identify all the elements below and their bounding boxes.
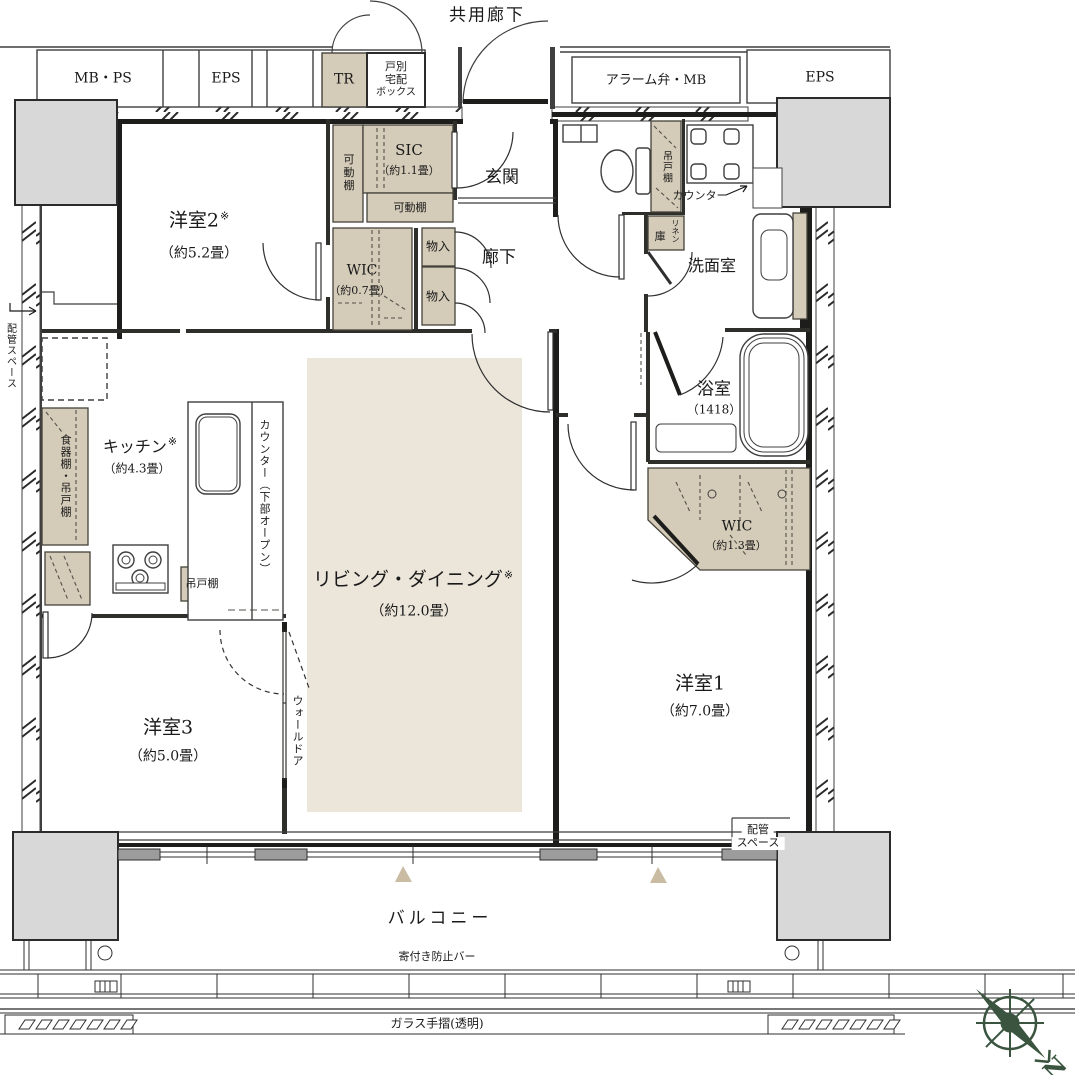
label-eps-left: EPS [211, 71, 240, 86]
railing [0, 970, 1075, 998]
label-wash-counter: カウンター [673, 190, 728, 202]
toilet-shelf [563, 125, 597, 142]
label-mono-ire-1: 物入 [426, 240, 450, 253]
label-eps-right: EPS [805, 70, 834, 85]
floor-plan-drawing: N [0, 0, 1075, 1075]
toilet-tank [636, 148, 650, 194]
drain-right [785, 946, 799, 960]
label-balcony: バルコニー [388, 910, 493, 929]
label-wic13: WIC [722, 519, 753, 534]
cabinet-kitchen [45, 552, 90, 605]
label-washroom: 洗面室 [688, 257, 736, 275]
label-glass-handrail: ガラス手摺(透明) [385, 1017, 488, 1030]
slide-marker-right [650, 867, 667, 883]
label-mb-ps: MB・PS [74, 71, 132, 86]
wash-counter [753, 168, 782, 208]
label-cupboard: 食器棚・吊戸棚 [59, 434, 71, 518]
label-alarm-mb: アラーム弁・MB [606, 74, 706, 88]
label-anti-lean-bar: 寄付き防止バー [399, 951, 476, 963]
label-bedroom3-size: （約5.0畳） [129, 749, 207, 764]
label-hanging-cupboard-kitchen: 吊戸棚 [186, 578, 219, 590]
label-wall-door: ウォールドア [291, 695, 303, 767]
label-counter-kitchen: カウンター（下部オープン） [258, 419, 270, 575]
label-mono-ire-2: 物入 [426, 290, 450, 303]
compass-n-label: N [1037, 1050, 1073, 1075]
label-linen-cabinet: 庫 リネン [653, 219, 679, 247]
label-hanging-cupboard-toilet: 吊戸棚 [661, 151, 672, 184]
label-corridor: 廊下 [482, 249, 516, 268]
compass: N [952, 965, 1075, 1075]
label-movable-shelf-v: 可動棚 [342, 154, 354, 193]
label-sic: SIC [395, 142, 423, 159]
label-pipe-space-right: 配管 スペース [732, 824, 785, 850]
label-bath-size: （1418） [687, 403, 742, 416]
toilet-bowl [601, 150, 633, 192]
balcony-zone [0, 846, 1075, 1034]
label-bedroom2: 洋室2※ [169, 211, 229, 232]
window-glass [160, 846, 722, 864]
label-living-dining-size: （約12.0畳） [370, 604, 457, 619]
window-sashes [118, 849, 777, 860]
entrance-door-leaf [463, 99, 548, 104]
label-wic07-size: （約0.7畳） [329, 285, 391, 297]
label-kitchen-size: （約4.3畳） [103, 462, 170, 475]
label-delivery-box: 戸別 宅配 ボックス [376, 61, 416, 99]
label-wic13-size: （約1.3畳） [705, 540, 767, 552]
label-movable-shelf-h: 可動棚 [394, 202, 427, 214]
vanity-back-shelf [793, 213, 807, 319]
label-wic07: WIC [347, 263, 378, 278]
label-kitchen: キッチン※ [103, 436, 177, 456]
label-common-corridor: 共用廊下 [449, 7, 525, 26]
slide-marker-left [395, 866, 412, 882]
label-bedroom1-size: （約7.0畳） [661, 704, 739, 719]
entrance-door-arc [463, 21, 548, 103]
label-entrance: 玄関 [485, 169, 519, 188]
label-pipe-space-left: 配管スペース [5, 323, 16, 389]
bath-bench [656, 424, 736, 452]
label-bedroom1: 洋室1 [675, 674, 725, 695]
label-living-dining: リビング・ダイニング※ [313, 570, 513, 591]
label-bedroom3: 洋室3 [143, 718, 193, 739]
label-sic-size: （約1.1畳） [378, 165, 440, 177]
glass-handrail [0, 1009, 1075, 1034]
label-bath: 浴室 [697, 381, 731, 400]
drain-left [98, 946, 112, 960]
label-tr: TR [334, 72, 354, 87]
refrigerator-space [42, 338, 107, 400]
floor-plan: N 共用廊下 MB・PS EPS TR 戸別 宅配 ボックス アラーム弁・MB … [0, 0, 1075, 1075]
service-zone [0, 1, 890, 109]
label-bedroom2-size: （約5.2畳） [160, 246, 238, 261]
